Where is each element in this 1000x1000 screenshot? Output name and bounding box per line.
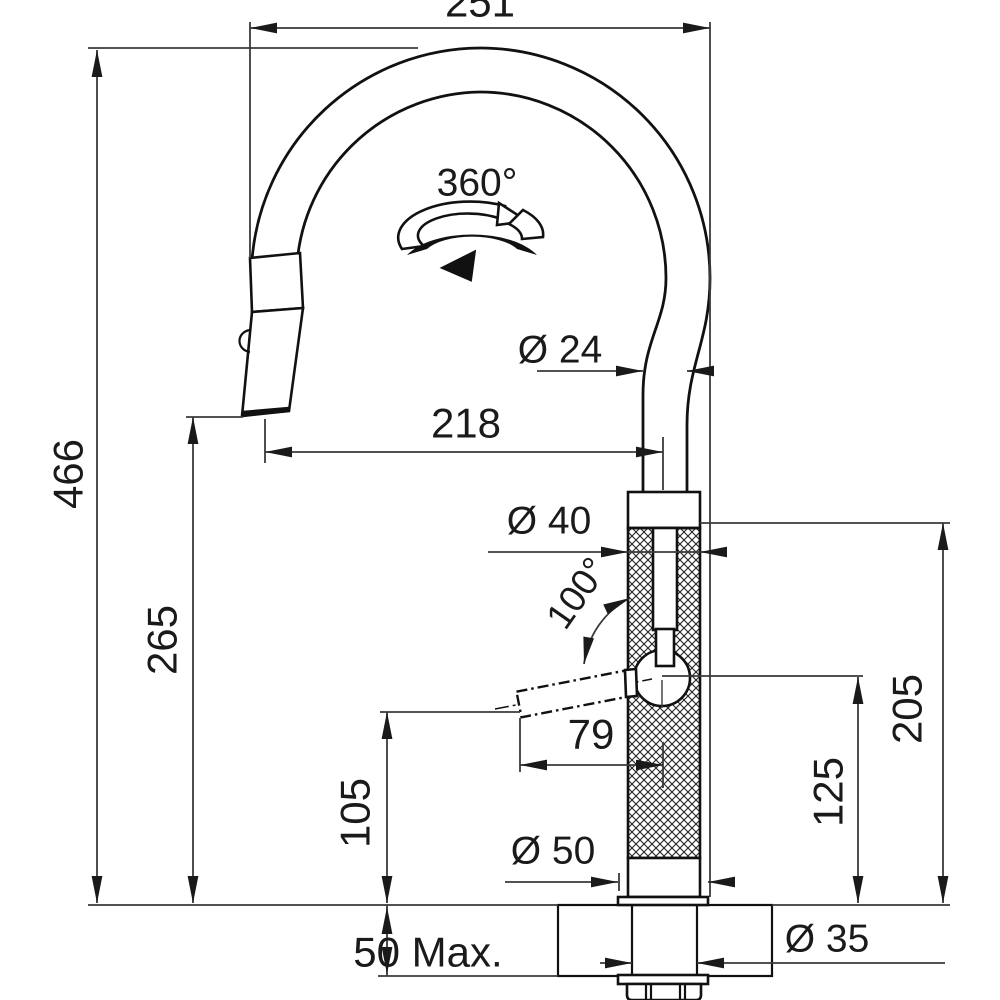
countertop-left-block: [558, 905, 632, 976]
mounting-nut: [627, 984, 701, 1000]
body-base-flange: [618, 897, 708, 905]
faucet-body: [618, 492, 708, 905]
label-265: 265: [139, 605, 186, 675]
rotation-band-top: [398, 202, 505, 249]
mounting-washer: [618, 975, 708, 984]
label-79: 79: [568, 711, 615, 758]
body-top-cap: [628, 492, 700, 528]
label-360: 360°: [437, 162, 518, 205]
spray-head-body: [242, 308, 303, 416]
label-105: 105: [332, 778, 379, 848]
lever-hub: [625, 669, 637, 697]
spray-head: [240, 253, 304, 416]
label-218: 218: [431, 400, 501, 447]
lever-slot-lower: [656, 629, 674, 666]
faucet-dimension-drawing: 251 466 265 218 Ø 24 360° Ø 40 100° 79 1…: [0, 0, 1000, 1000]
label-50max: 50 Max.: [353, 929, 502, 976]
label-466: 466: [45, 439, 92, 509]
rotation-arrowhead-black: [436, 247, 478, 284]
mounting-hardware: [618, 975, 708, 1000]
countertop-section: [558, 905, 772, 976]
label-d24: Ø 24: [518, 329, 603, 372]
spray-head-connector: [250, 253, 303, 312]
label-d50: Ø 50: [511, 830, 596, 873]
label-d35: Ø 35: [785, 918, 870, 961]
label-205: 205: [884, 674, 931, 744]
lever-slot: [653, 528, 677, 630]
swivel-rotation-symbol: [398, 202, 543, 284]
countertop-right-block: [697, 905, 772, 976]
label-100deg: 100°: [538, 550, 615, 636]
technical-drawing-page: 251 466 265 218 Ø 24 360° Ø 40 100° 79 1…: [0, 0, 1000, 1000]
dimension-labels: 251 466 265 218 Ø 24 360° Ø 40 100° 79 1…: [45, 0, 931, 976]
label-d40: Ø 40: [507, 500, 592, 543]
body-base-section: [628, 858, 700, 897]
label-251: 251: [445, 0, 515, 26]
label-125: 125: [805, 757, 852, 827]
